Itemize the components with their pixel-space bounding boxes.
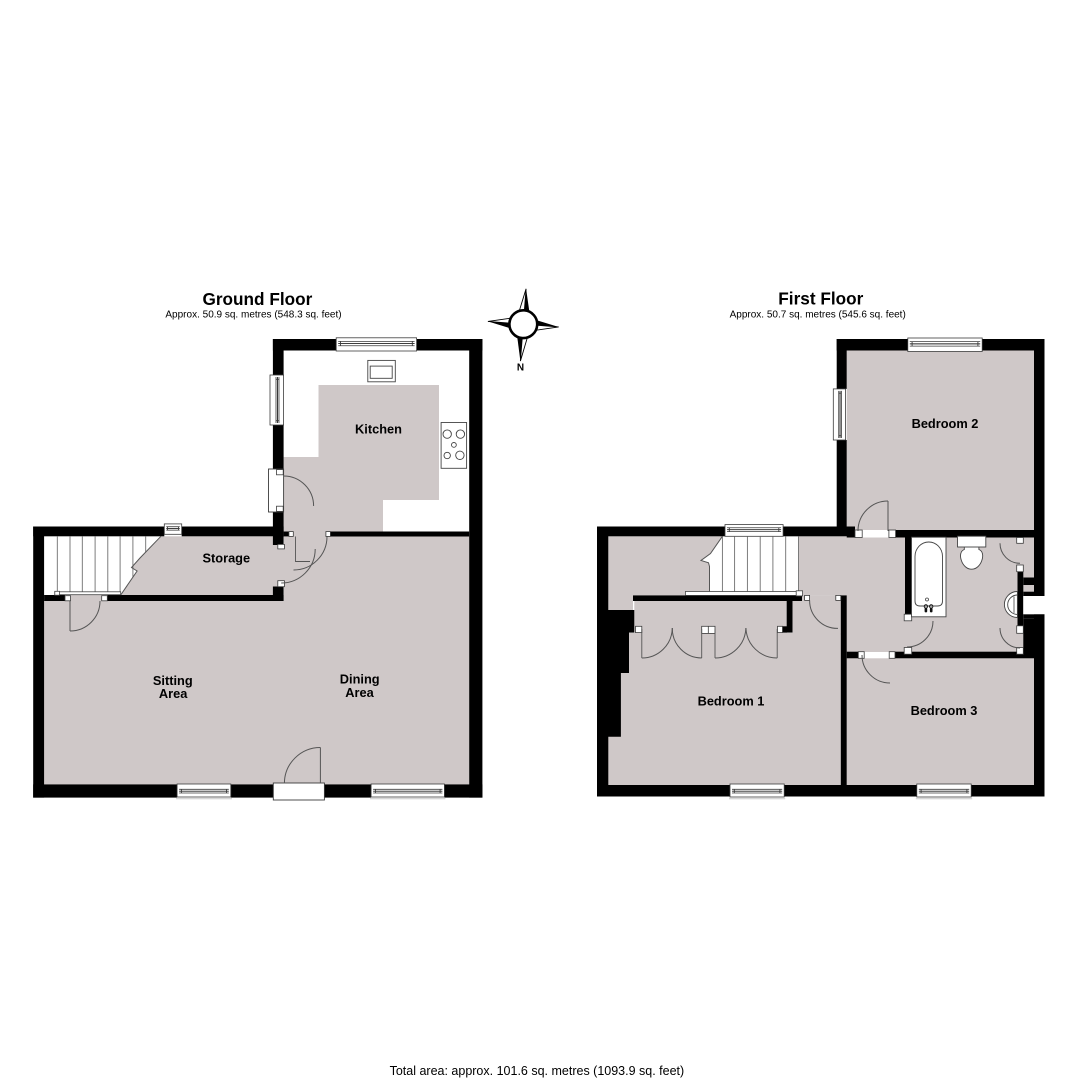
svg-text:Bedroom 2: Bedroom 2: [912, 416, 979, 431]
svg-text:Approx. 50.9 sq. metres (548.3: Approx. 50.9 sq. metres (548.3 sq. feet): [165, 310, 341, 321]
svg-text:N: N: [517, 363, 524, 374]
svg-text:Kitchen: Kitchen: [355, 421, 402, 436]
svg-text:Approx. 50.7 sq. metres (545.6: Approx. 50.7 sq. metres (545.6 sq. feet): [730, 310, 906, 321]
svg-text:Ground Floor: Ground Floor: [203, 289, 313, 309]
svg-text:Bedroom 1: Bedroom 1: [698, 693, 765, 708]
svg-text:Area: Area: [345, 685, 374, 700]
svg-text:Area: Area: [159, 686, 188, 701]
svg-text:Storage: Storage: [202, 551, 250, 566]
svg-text:Total area: approx. 101.6 sq.: Total area: approx. 101.6 sq. metres (10…: [390, 1064, 685, 1078]
svg-text:First Floor: First Floor: [778, 289, 863, 309]
svg-text:Bedroom 3: Bedroom 3: [911, 703, 978, 718]
